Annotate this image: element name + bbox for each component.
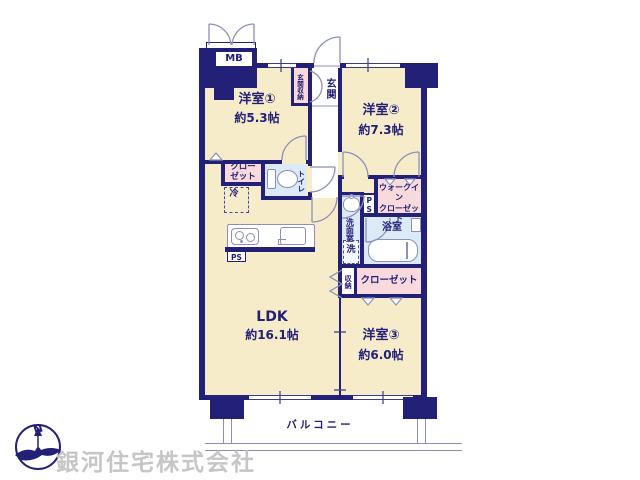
closet3-pleat-icon [390, 298, 402, 305]
company-watermark: 銀河住宅株式会社 [56, 443, 256, 477]
mb-door-arcs [209, 24, 254, 45]
bathroom-label: 浴室 [370, 221, 414, 234]
balcony-label: バルコニー [240, 419, 400, 433]
room3-name: 洋室③ [340, 328, 422, 345]
floorplan-canvas: MB PS [0, 0, 640, 480]
ps-wet-label: PS [364, 195, 374, 215]
mb-door-panels [209, 24, 254, 45]
toilet-door [310, 167, 335, 192]
genkan-label: 玄関 [323, 72, 336, 106]
closet3-pleat-icon [362, 298, 374, 305]
wic-door [394, 152, 419, 177]
washroom-label: 洗面室 [344, 214, 354, 246]
ldk-size: 約16.1帖 [205, 328, 339, 344]
room3-size: 約6.0帖 [340, 348, 422, 364]
room2-name: 洋室② [340, 103, 422, 120]
room2-door [343, 152, 368, 177]
ldk-name: LDK [205, 308, 339, 326]
compass-bird-shape [15, 447, 61, 460]
genkan-storage-label: 玄関収納 [295, 70, 303, 104]
storage-label: 収納 [343, 271, 352, 293]
room1-size: 約5.3帖 [205, 111, 309, 127]
genkan-storage-doors [310, 71, 322, 102]
closet3-label: クローゼット [357, 275, 421, 287]
closet1-label: クロー ゼット [225, 163, 261, 183]
room2-size: 約7.3帖 [340, 123, 422, 139]
washer-label: 洗 [343, 245, 359, 257]
room1-name: 洋室① [205, 92, 309, 109]
room1-door [282, 136, 306, 160]
walkin-closet-label: ウォークイン クローゼット [376, 183, 422, 225]
storage-fold-door [330, 270, 342, 298]
hall-ldk-door [312, 197, 337, 222]
vent-triangle-icon [210, 153, 222, 160]
toilet-label: トイレ [296, 166, 306, 196]
fridge-label: 冷 [226, 189, 242, 201]
doors-overlay [0, 0, 640, 480]
front-door-arc [314, 37, 340, 63]
